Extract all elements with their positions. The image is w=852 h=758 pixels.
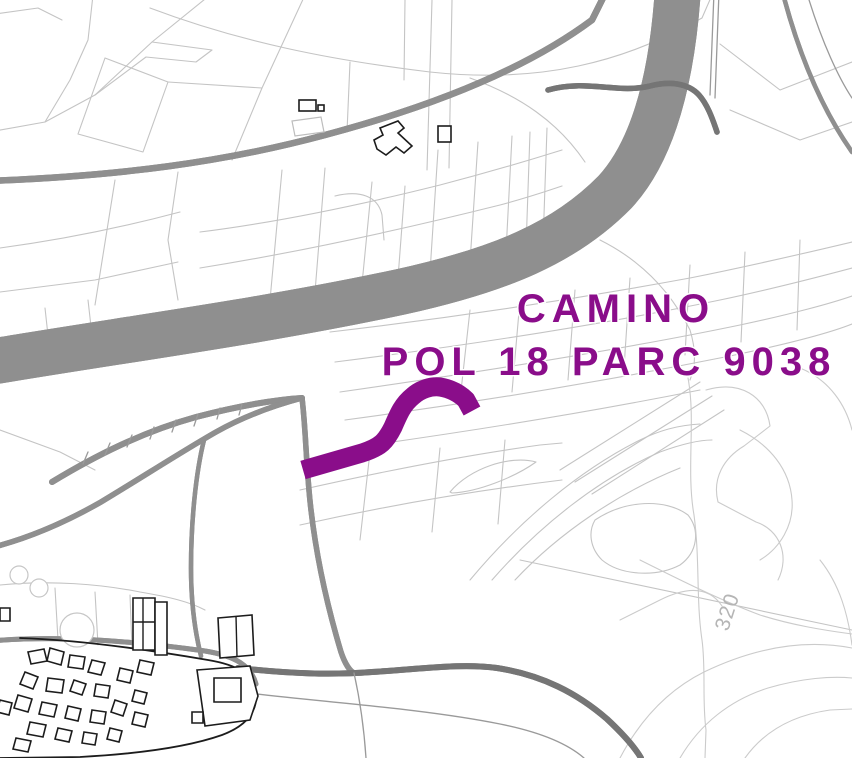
camino-label-line1: CAMINO xyxy=(517,287,715,331)
building xyxy=(318,105,324,111)
cadastral-map-canvas[interactable]: 320 CAMINO POL 18 PARC 9038 xyxy=(0,0,852,758)
highlight-layer xyxy=(303,387,472,470)
map-viewport[interactable]: 320 CAMINO POL 18 PARC 9038 xyxy=(0,0,852,758)
camino-label-line2: POL 18 PARC 9038 xyxy=(382,340,837,384)
highlighted-camino-path xyxy=(303,387,472,470)
contour-lines-layer xyxy=(620,368,852,758)
building-ruin xyxy=(292,117,324,136)
building xyxy=(299,100,316,111)
building-farm xyxy=(374,121,412,155)
tree-circles xyxy=(10,566,94,647)
building xyxy=(438,126,451,142)
